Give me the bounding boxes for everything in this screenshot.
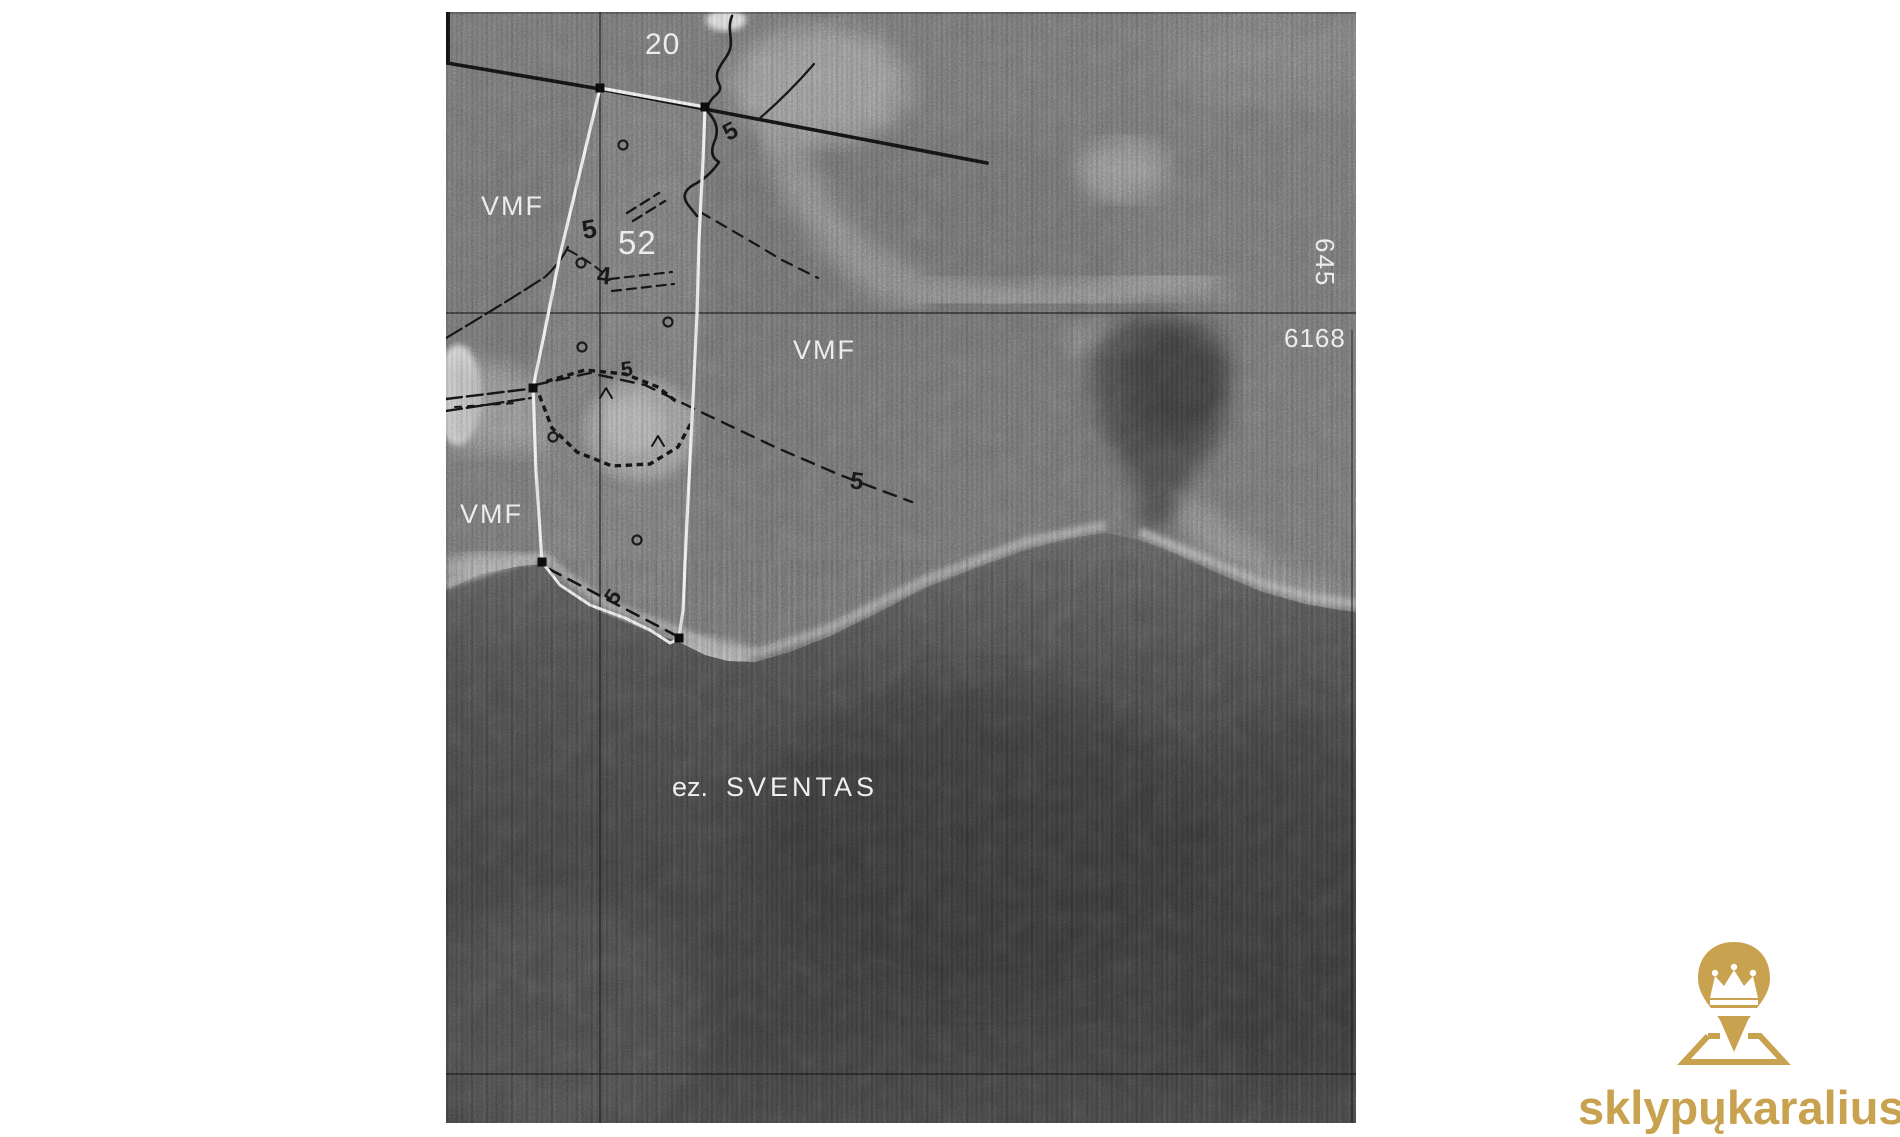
- map-pin-crown-icon: [1672, 936, 1796, 1076]
- watermark-text: sklypųkaralius.lt: [1578, 1080, 1900, 1135]
- label-vmf-west: VMF: [481, 193, 544, 220]
- label-parcel-52: 52: [618, 226, 657, 259]
- label-grid-easting: 645: [1312, 238, 1338, 287]
- label-lake-name: ez.SVENTAS: [672, 774, 878, 801]
- label-vmf-south: VMF: [460, 501, 523, 528]
- aerial-photo-graphics: [446, 12, 1356, 1123]
- lake-name: SVENTAS: [726, 772, 878, 802]
- page-background: 20 52 VMF VMF VMF 6168 645 ez.SVENTAS 5 …: [0, 0, 1900, 1137]
- label-block-20: 20: [645, 30, 680, 60]
- aerial-photo: 20 52 VMF VMF VMF 6168 645 ez.SVENTAS 5 …: [446, 12, 1356, 1123]
- label-grid-northing: 6168: [1284, 325, 1346, 351]
- path-label-5-mid: 5: [620, 358, 634, 380]
- blotch-overlay: [446, 12, 1356, 1123]
- lake-abbr: ez.: [672, 772, 708, 802]
- label-vmf-east: VMF: [793, 337, 856, 364]
- path-label-4: 4: [596, 263, 612, 289]
- watermark-logo: sklypųkaralius.lt: [1578, 930, 1898, 1135]
